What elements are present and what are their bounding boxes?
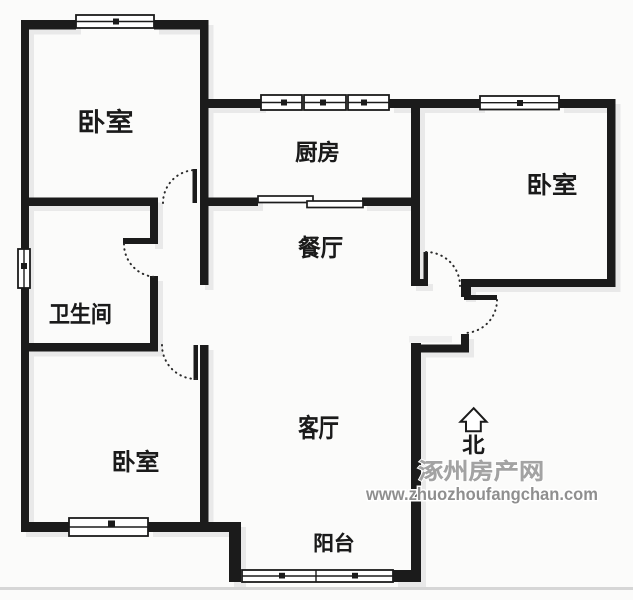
svg-text:www.zhuozhoufangchan.com: www.zhuozhoufangchan.com	[365, 484, 598, 504]
